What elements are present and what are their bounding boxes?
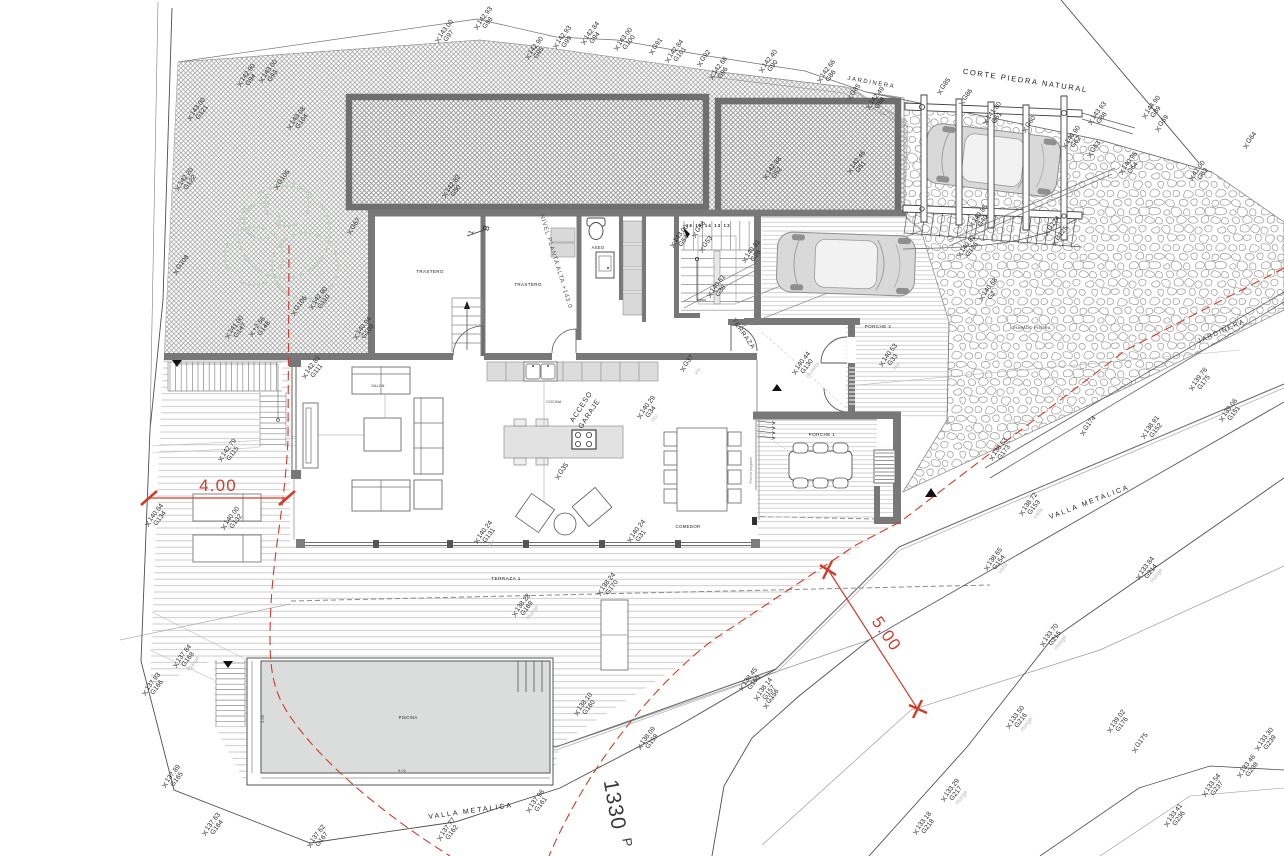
svg-text:ASEO: ASEO [592, 245, 605, 250]
svg-text:4.00: 4.00 [199, 476, 237, 495]
svg-text:CHAPADO PIEDRA: CHAPADO PIEDRA [1011, 325, 1051, 330]
svg-text:PISCINA: PISCINA [399, 715, 418, 720]
svg-text:TERRAZA 1: TERRAZA 1 [491, 576, 521, 581]
svg-text:TRASTERO: TRASTERO [416, 269, 444, 274]
svg-text:SALON: SALON [371, 384, 384, 388]
svg-text:Puerta plegable: Puerta plegable [749, 457, 753, 484]
svg-text:3.05: 3.05 [261, 715, 265, 723]
svg-text:9.00: 9.00 [398, 769, 406, 773]
svg-text:PORCHE 2: PORCHE 2 [865, 324, 892, 329]
svg-text:16 15 14 13 12: 16 15 14 13 12 [686, 223, 731, 228]
svg-text:TRASTERO: TRASTERO [514, 282, 542, 287]
svg-text:PORCHE 1: PORCHE 1 [809, 432, 836, 437]
svg-text:COCINA: COCINA [546, 400, 562, 404]
svg-text:COMEDOR: COMEDOR [675, 524, 700, 529]
